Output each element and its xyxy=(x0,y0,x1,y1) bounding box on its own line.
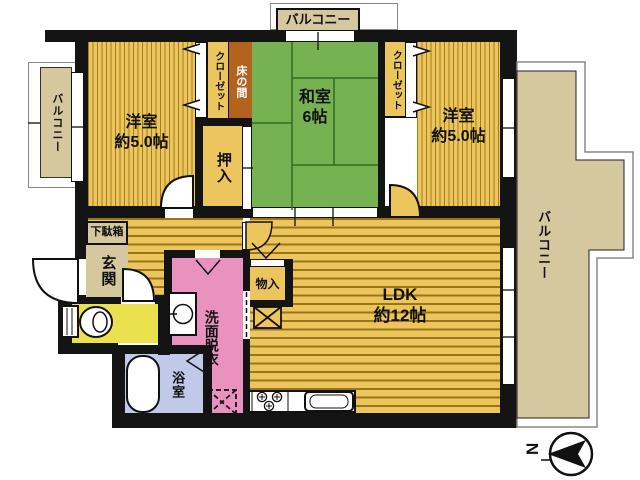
wall xyxy=(75,206,167,218)
wall xyxy=(195,118,252,126)
genkan-label: 玄関 xyxy=(86,247,128,295)
window-ldk xyxy=(502,247,515,385)
closet-left-door xyxy=(195,42,207,118)
washitsu-label: 和室 6帖 xyxy=(252,78,378,138)
bathroom-label: 浴室 xyxy=(166,358,188,412)
door-leaf-hall xyxy=(242,222,250,250)
monoire-door xyxy=(250,259,285,267)
compass-icon: N xyxy=(523,433,592,475)
wall xyxy=(112,413,517,428)
oshiire-label: 押入 xyxy=(203,134,242,202)
ldk-label: LDK 約12帖 xyxy=(330,278,470,332)
window-washitsu-top xyxy=(285,30,355,42)
kitchen-counter xyxy=(248,390,356,413)
wall xyxy=(195,118,203,218)
balcony-left-label: バルコニー xyxy=(42,72,70,173)
yoshitsu-right-label: 洋室 約5.0帖 xyxy=(417,98,500,156)
wall xyxy=(385,206,390,218)
room-bathroom xyxy=(125,354,203,414)
senmen-label: 洗面脱衣 xyxy=(198,272,224,404)
sliding-door-washitsu xyxy=(252,207,378,218)
closet-right-label: クローゼット xyxy=(385,44,405,116)
getabako-box: 下駄箱 xyxy=(86,221,128,245)
yoshitsu-left-label: 洋室 約5.0帖 xyxy=(88,105,195,161)
door-gap-yoshitsu-left xyxy=(165,206,191,218)
balcony-top-label: バルコニー xyxy=(286,12,351,28)
monoire-label: 物入 xyxy=(250,270,285,298)
closet-right-door xyxy=(405,42,417,118)
getabako-label: 下駄箱 xyxy=(91,226,124,240)
room-toilet xyxy=(72,304,158,343)
window-yoshitsu-right xyxy=(502,78,515,178)
window-west xyxy=(71,72,84,182)
door-gap-kitchen xyxy=(243,291,250,339)
wall xyxy=(420,206,500,218)
tokonoma-label: 床の間 xyxy=(228,46,252,116)
sliding-door-oshiire xyxy=(242,126,252,210)
wall xyxy=(112,345,212,354)
door-gap-yoshitsu-right xyxy=(391,206,419,218)
wall xyxy=(245,300,293,307)
floor-plan: バルコニー バルコニー バルコニー xyxy=(0,0,640,480)
wall xyxy=(378,42,385,218)
wall xyxy=(164,258,172,352)
closet-left-label: クローゼット xyxy=(207,44,228,117)
compass-north-label: N xyxy=(523,443,542,455)
balcony-right-label: バルコニー xyxy=(530,180,556,310)
entrance-door-leaf xyxy=(69,259,78,303)
door-gap-senmen xyxy=(195,250,220,258)
wall xyxy=(45,30,517,42)
wall xyxy=(112,345,125,420)
